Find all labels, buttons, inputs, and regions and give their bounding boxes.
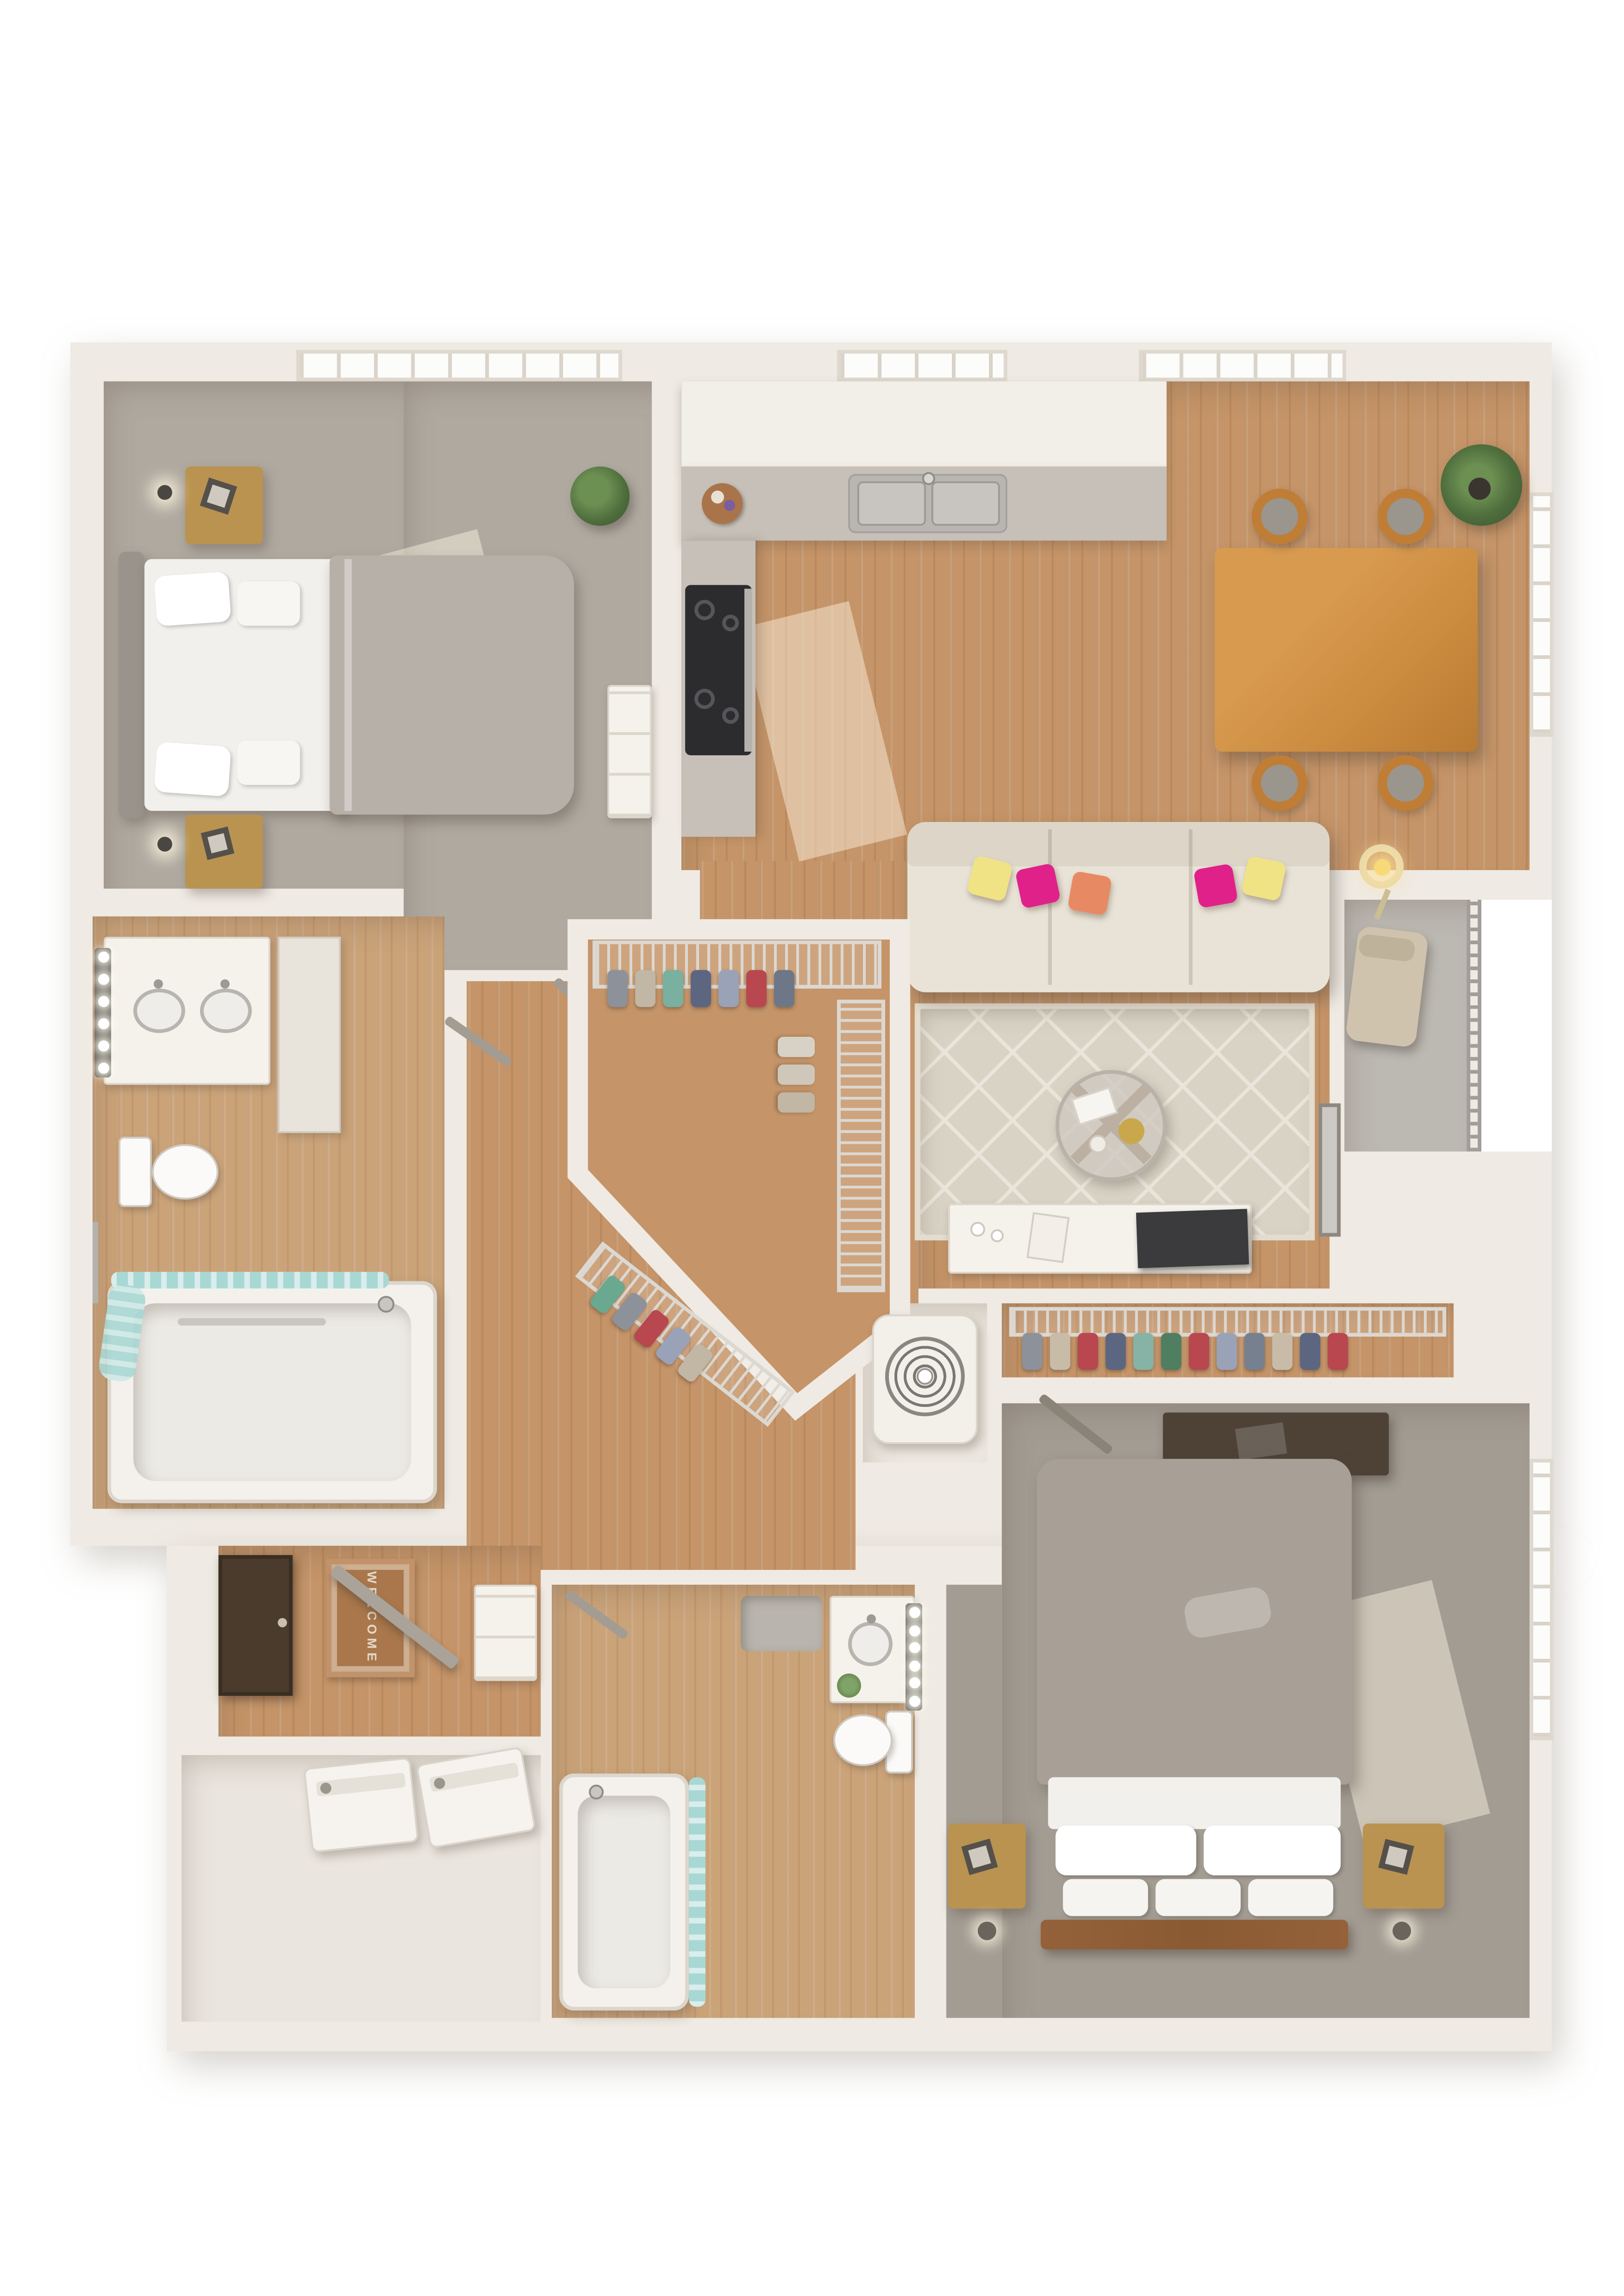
dining-window-right (1530, 492, 1554, 737)
decor-vase (991, 1229, 1004, 1242)
bed-2-sheet (1048, 1777, 1341, 1829)
round-sink (848, 1622, 893, 1666)
wall-sconce (157, 837, 172, 852)
clothing-item (1244, 1333, 1265, 1370)
closet-shelf-right (837, 1000, 885, 1292)
dining-chair (1252, 489, 1307, 544)
range-control-strip (744, 589, 752, 752)
bed-1-headboard (119, 552, 145, 818)
vanity-sink (133, 989, 185, 1033)
vanity-bulb (908, 1696, 919, 1707)
serving-board-items (724, 500, 735, 511)
vanity-faucet (154, 979, 163, 989)
bathtub-basin (578, 1796, 670, 1989)
sofa-cushion-seam (1189, 829, 1193, 985)
kitchen-sink-basin (932, 481, 1000, 526)
towel-bar (93, 1222, 98, 1303)
washer (303, 1757, 419, 1853)
coffee-table (1056, 1070, 1167, 1181)
vanity-bulb (97, 996, 108, 1007)
candle-cluster (1089, 1135, 1108, 1154)
clothing-item (1216, 1333, 1237, 1370)
clothing-item (778, 1092, 815, 1113)
cooktop-burner (722, 615, 739, 631)
bed-2-pillow-small (1063, 1879, 1148, 1916)
welcome-mat-text: WELCOME (364, 1571, 377, 1665)
clothing-item (778, 1037, 815, 1057)
vanity-bulb (97, 952, 108, 963)
hanging-clothes (607, 970, 794, 1007)
clothing-item (718, 970, 739, 1007)
hanging-clothes (778, 1037, 815, 1113)
clothing-item (746, 970, 767, 1007)
bed-2-pillow (1056, 1826, 1196, 1876)
vanity-bulb (97, 974, 108, 985)
bed-2-pillow-small (1248, 1879, 1333, 1916)
clothing-item (1300, 1333, 1320, 1370)
fan-hub (917, 1368, 933, 1385)
clothing-item (607, 970, 628, 1007)
balcony-open-side (1481, 900, 1552, 1152)
cooktop-burner (694, 600, 715, 620)
dining-chair (1378, 755, 1433, 811)
bed-1-duvet-fold (345, 559, 352, 811)
floor-lamp-bulb (1374, 859, 1391, 876)
clothing-item (1078, 1333, 1098, 1370)
bed-1-duvet (330, 555, 574, 815)
vanity-bulb (97, 1063, 108, 1074)
clothing-item (778, 1065, 815, 1085)
toilet-bowl (833, 1714, 893, 1766)
decor-vase (970, 1222, 985, 1236)
bed-2-pillow-small (1156, 1879, 1241, 1916)
kitchen-upper-cabinets (681, 382, 1166, 467)
vanity-bulb (908, 1625, 919, 1636)
table-lamp (1392, 1922, 1411, 1940)
clothing-item (1328, 1333, 1348, 1370)
vanity-sink (200, 989, 252, 1033)
hall-closet-shelf (1009, 1307, 1446, 1336)
gold-tray (1119, 1118, 1145, 1144)
kitchen-sink-basin (857, 481, 926, 526)
clothing-item (1022, 1333, 1043, 1370)
throw-pillow (1193, 863, 1238, 908)
shower-curtain (111, 1272, 389, 1288)
dining-window-top (1139, 350, 1347, 382)
tub-faucet (589, 1785, 604, 1800)
bath-mat (741, 1596, 822, 1651)
dining-table (1215, 548, 1478, 752)
bed-2-pillow (1204, 1826, 1341, 1876)
cooktop-burner (694, 689, 715, 709)
vanity-light-strip (906, 1603, 922, 1711)
bed-2-frame (1041, 1920, 1348, 1950)
potted-plant (570, 466, 629, 526)
sofa-cushion-seam (1048, 829, 1052, 985)
toilet-tank (119, 1137, 152, 1207)
bed-1-pillow (237, 581, 300, 626)
wall-sconce (157, 485, 172, 500)
dining-chair (1252, 755, 1307, 811)
clothing-item (1050, 1333, 1070, 1370)
throw-pillow (1067, 871, 1112, 916)
clothing-item (1106, 1333, 1126, 1370)
sofa (907, 822, 1329, 992)
bed-1-pillow (154, 742, 231, 797)
vanity-bulb (908, 1660, 919, 1671)
palm-plant-pot (1468, 477, 1491, 500)
bathtub-basin (133, 1303, 411, 1481)
serving-board-items (711, 490, 724, 503)
vanity-light-strip (94, 948, 111, 1078)
clothing-item (663, 970, 683, 1007)
cooktop-burner (722, 707, 739, 724)
clothing-item (774, 970, 794, 1007)
clothing-item (1272, 1333, 1292, 1370)
bedroom-1-window (296, 350, 623, 382)
entry-built-in-shelves (474, 1585, 537, 1681)
clothing-item (1133, 1333, 1154, 1370)
tv (1136, 1209, 1249, 1268)
bedroom-2-window (1530, 1459, 1554, 1740)
dining-chair (1378, 489, 1433, 544)
balcony-railing (1467, 900, 1481, 1152)
vanity-bulb (908, 1678, 919, 1689)
clothing-item (1189, 1333, 1209, 1370)
hanging-clothes (1022, 1333, 1348, 1370)
table-lamp (978, 1922, 996, 1940)
sink-faucet (867, 1614, 876, 1624)
art-book (1026, 1212, 1070, 1263)
bed-1-pillow (237, 740, 300, 785)
shower-curtain (689, 1777, 705, 2007)
bedroom-2-carpet-extension (946, 1585, 1002, 2018)
vanity-bulb (908, 1643, 919, 1654)
floorplan-canvas: WELCOME (0, 0, 1624, 2296)
leaning-mirror (1318, 1104, 1341, 1237)
clothing-item (691, 970, 711, 1007)
clothing-item (635, 970, 655, 1007)
vanity-faucet (220, 979, 230, 989)
vanity-plant (837, 1674, 861, 1698)
kitchen-faucet (922, 472, 935, 485)
serving-board (702, 483, 743, 524)
bed-1-pillow (154, 571, 231, 627)
clothing-item (1161, 1333, 1182, 1370)
throw-pillow (1241, 855, 1287, 902)
throw-pillow (1015, 863, 1061, 909)
vanity-bulb (908, 1607, 919, 1618)
dresser (607, 685, 652, 818)
grab-bar (178, 1318, 326, 1325)
vanity-bulb (97, 1041, 108, 1052)
laptop (1235, 1422, 1287, 1460)
tub-faucet (378, 1296, 395, 1312)
door-handle (278, 1618, 287, 1627)
vanity-bulb (97, 1018, 108, 1029)
kitchen-window (837, 350, 1007, 382)
toilet-bowl (152, 1144, 219, 1200)
linen-cabinet (278, 937, 341, 1133)
